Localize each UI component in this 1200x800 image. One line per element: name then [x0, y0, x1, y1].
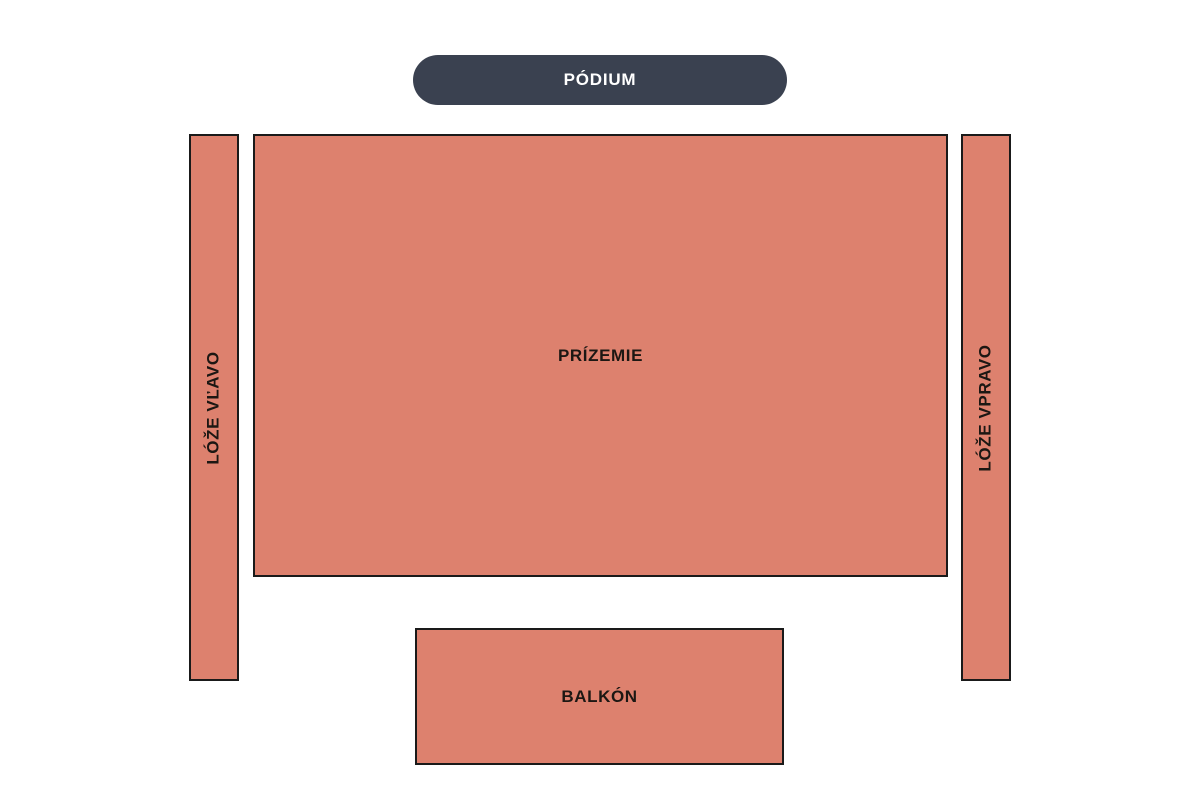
section-loze-vlavo[interactable]: LÓŽE VĽAVO: [189, 134, 239, 681]
section-prizemie[interactable]: PRÍZEMIE: [253, 134, 948, 577]
stage-podium: PÓDIUM: [413, 55, 787, 105]
section-loze-vpravo[interactable]: LÓŽE VPRAVO: [961, 134, 1011, 681]
seating-map: PÓDIUM LÓŽE VĽAVO PRÍZEMIE LÓŽE VPRAVO B…: [0, 0, 1200, 800]
section-balkon-label: BALKÓN: [561, 687, 637, 707]
section-loze-vpravo-label: LÓŽE VPRAVO: [976, 344, 996, 471]
section-prizemie-label: PRÍZEMIE: [558, 346, 643, 366]
section-loze-vlavo-label: LÓŽE VĽAVO: [204, 351, 224, 464]
section-balkon[interactable]: BALKÓN: [415, 628, 784, 765]
stage-podium-label: PÓDIUM: [564, 70, 637, 90]
